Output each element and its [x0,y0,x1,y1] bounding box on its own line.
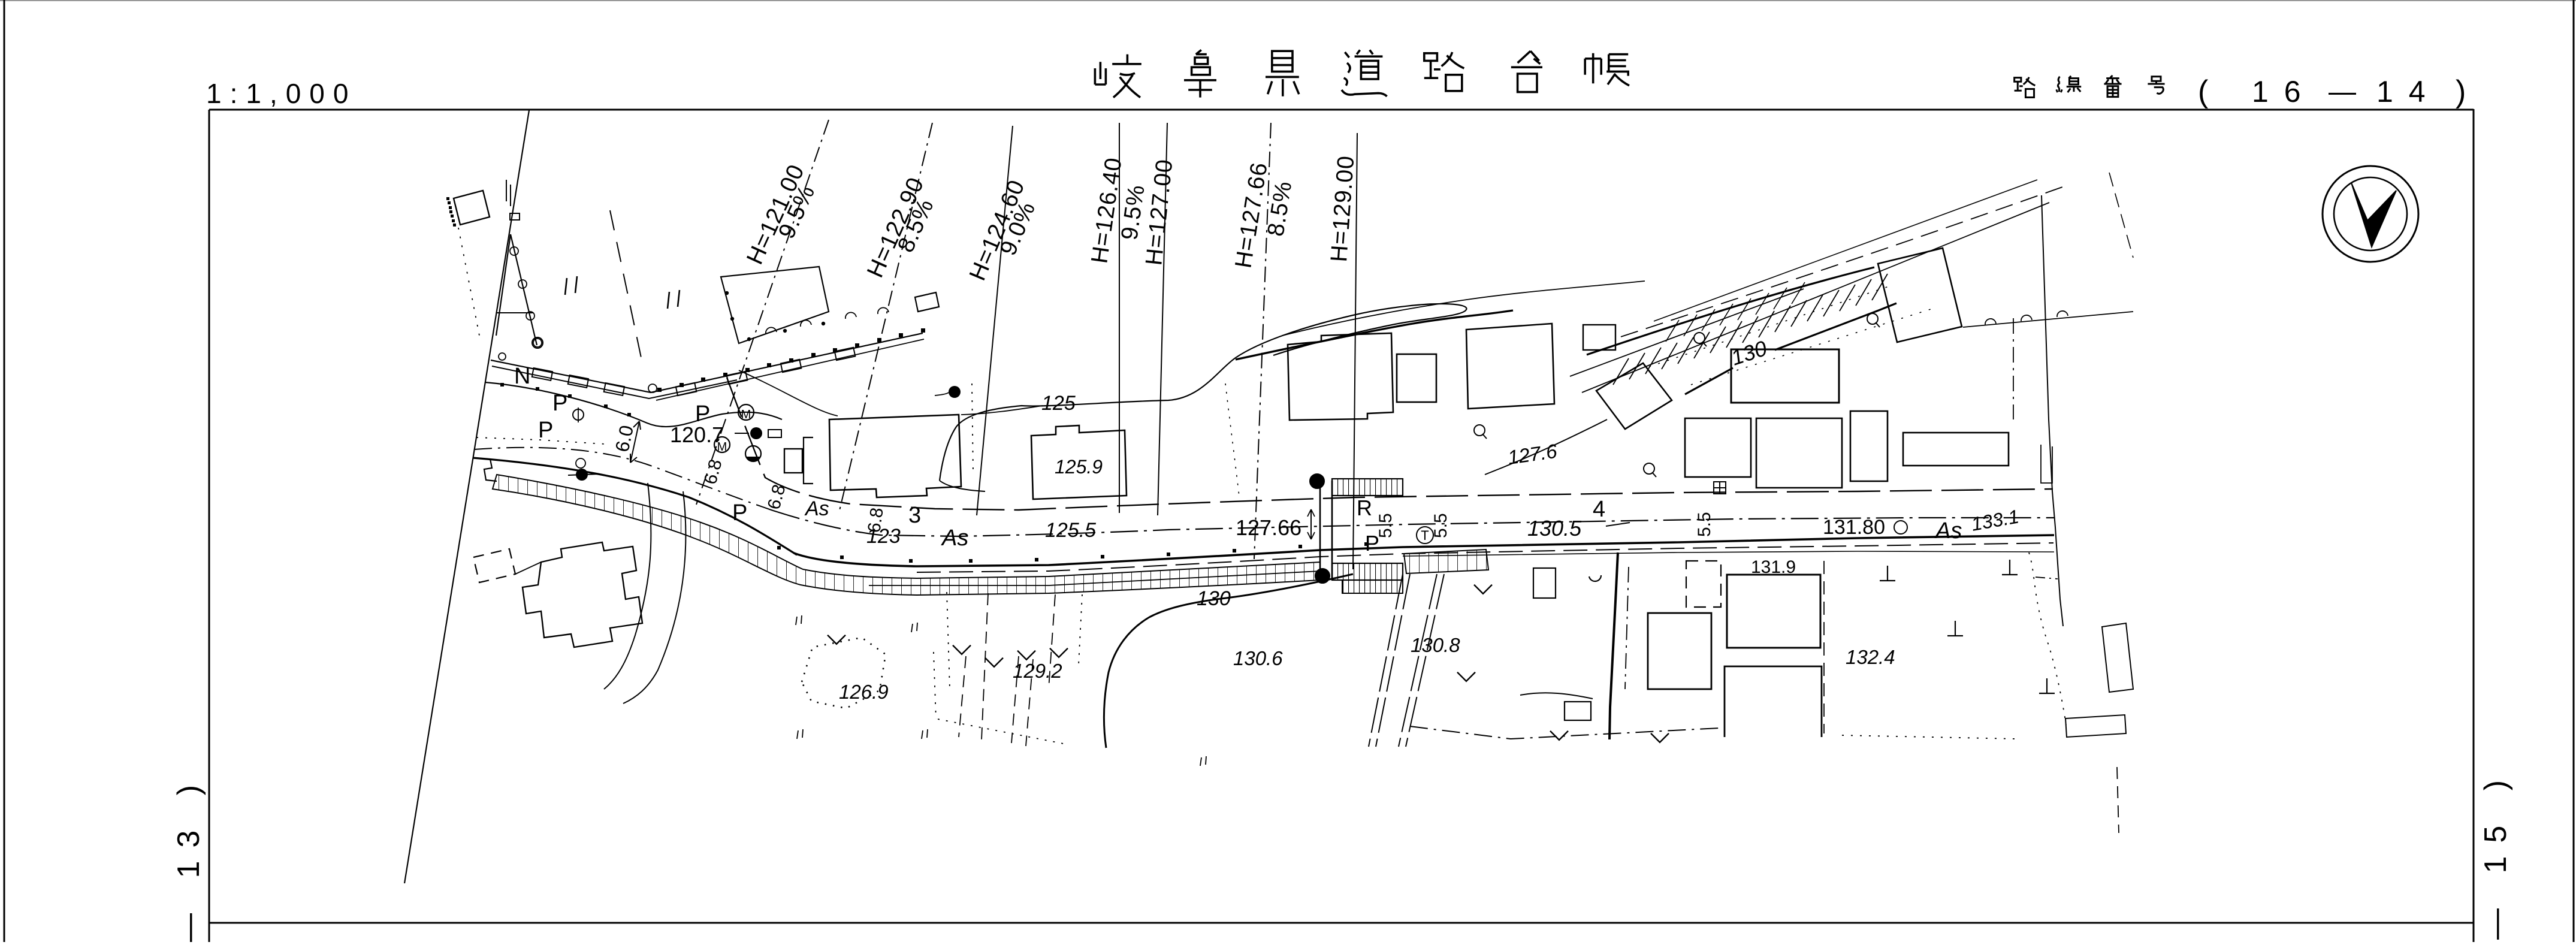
svg-text:M: M [717,440,727,454]
svg-text:130: 130 [1197,587,1231,610]
svg-text:125: 125 [1041,392,1076,415]
svg-text:As: As [1934,518,1962,544]
svg-text:14: 14 [2376,75,2441,108]
svg-text:16: 16 [2252,75,2317,108]
svg-text:— 15 ): — 15 ) [2478,767,2513,940]
svg-text:130.5: 130.5 [1527,516,1582,541]
svg-text:R: R [1357,496,1372,520]
svg-text:126.9: 126.9 [839,681,889,703]
svg-text:130.6: 130.6 [1233,647,1283,669]
svg-text:): ) [2456,74,2466,109]
svg-text:130.8: 130.8 [1411,634,1460,656]
svg-text:T: T [1421,528,1429,543]
svg-text:125.9: 125.9 [1055,456,1103,478]
svg-text:As: As [941,526,968,551]
svg-text:129.2: 129.2 [1013,660,1062,682]
svg-text:132.4: 132.4 [1846,646,1895,668]
svg-text:As: As [804,497,829,520]
svg-text:3: 3 [908,503,921,528]
svg-text:P: P [538,418,553,443]
svg-text:120.7: 120.7 [670,422,724,447]
svg-text:5.5: 5.5 [1376,513,1396,538]
svg-text:—: — [2329,76,2356,107]
svg-text:1:1,000: 1:1,000 [206,78,357,109]
svg-text:5.5: 5.5 [1695,512,1714,537]
svg-text:(: ( [2198,74,2209,109]
svg-text:131.9: 131.9 [1751,557,1796,577]
svg-text:125.5: 125.5 [1045,519,1096,542]
svg-text:5.5: 5.5 [1431,513,1451,538]
svg-text:127.66: 127.66 [1236,515,1301,540]
svg-text:M: M [741,408,751,421]
svg-text:123: 123 [866,525,901,548]
svg-text:P: P [552,391,567,416]
svg-text:N: N [514,364,530,389]
svg-text:131.80: 131.80 [1823,516,1885,539]
svg-text:P: P [732,500,747,526]
svg-text:4: 4 [1593,497,1605,522]
svg-text:— 13 ): — 13 ) [171,772,206,942]
